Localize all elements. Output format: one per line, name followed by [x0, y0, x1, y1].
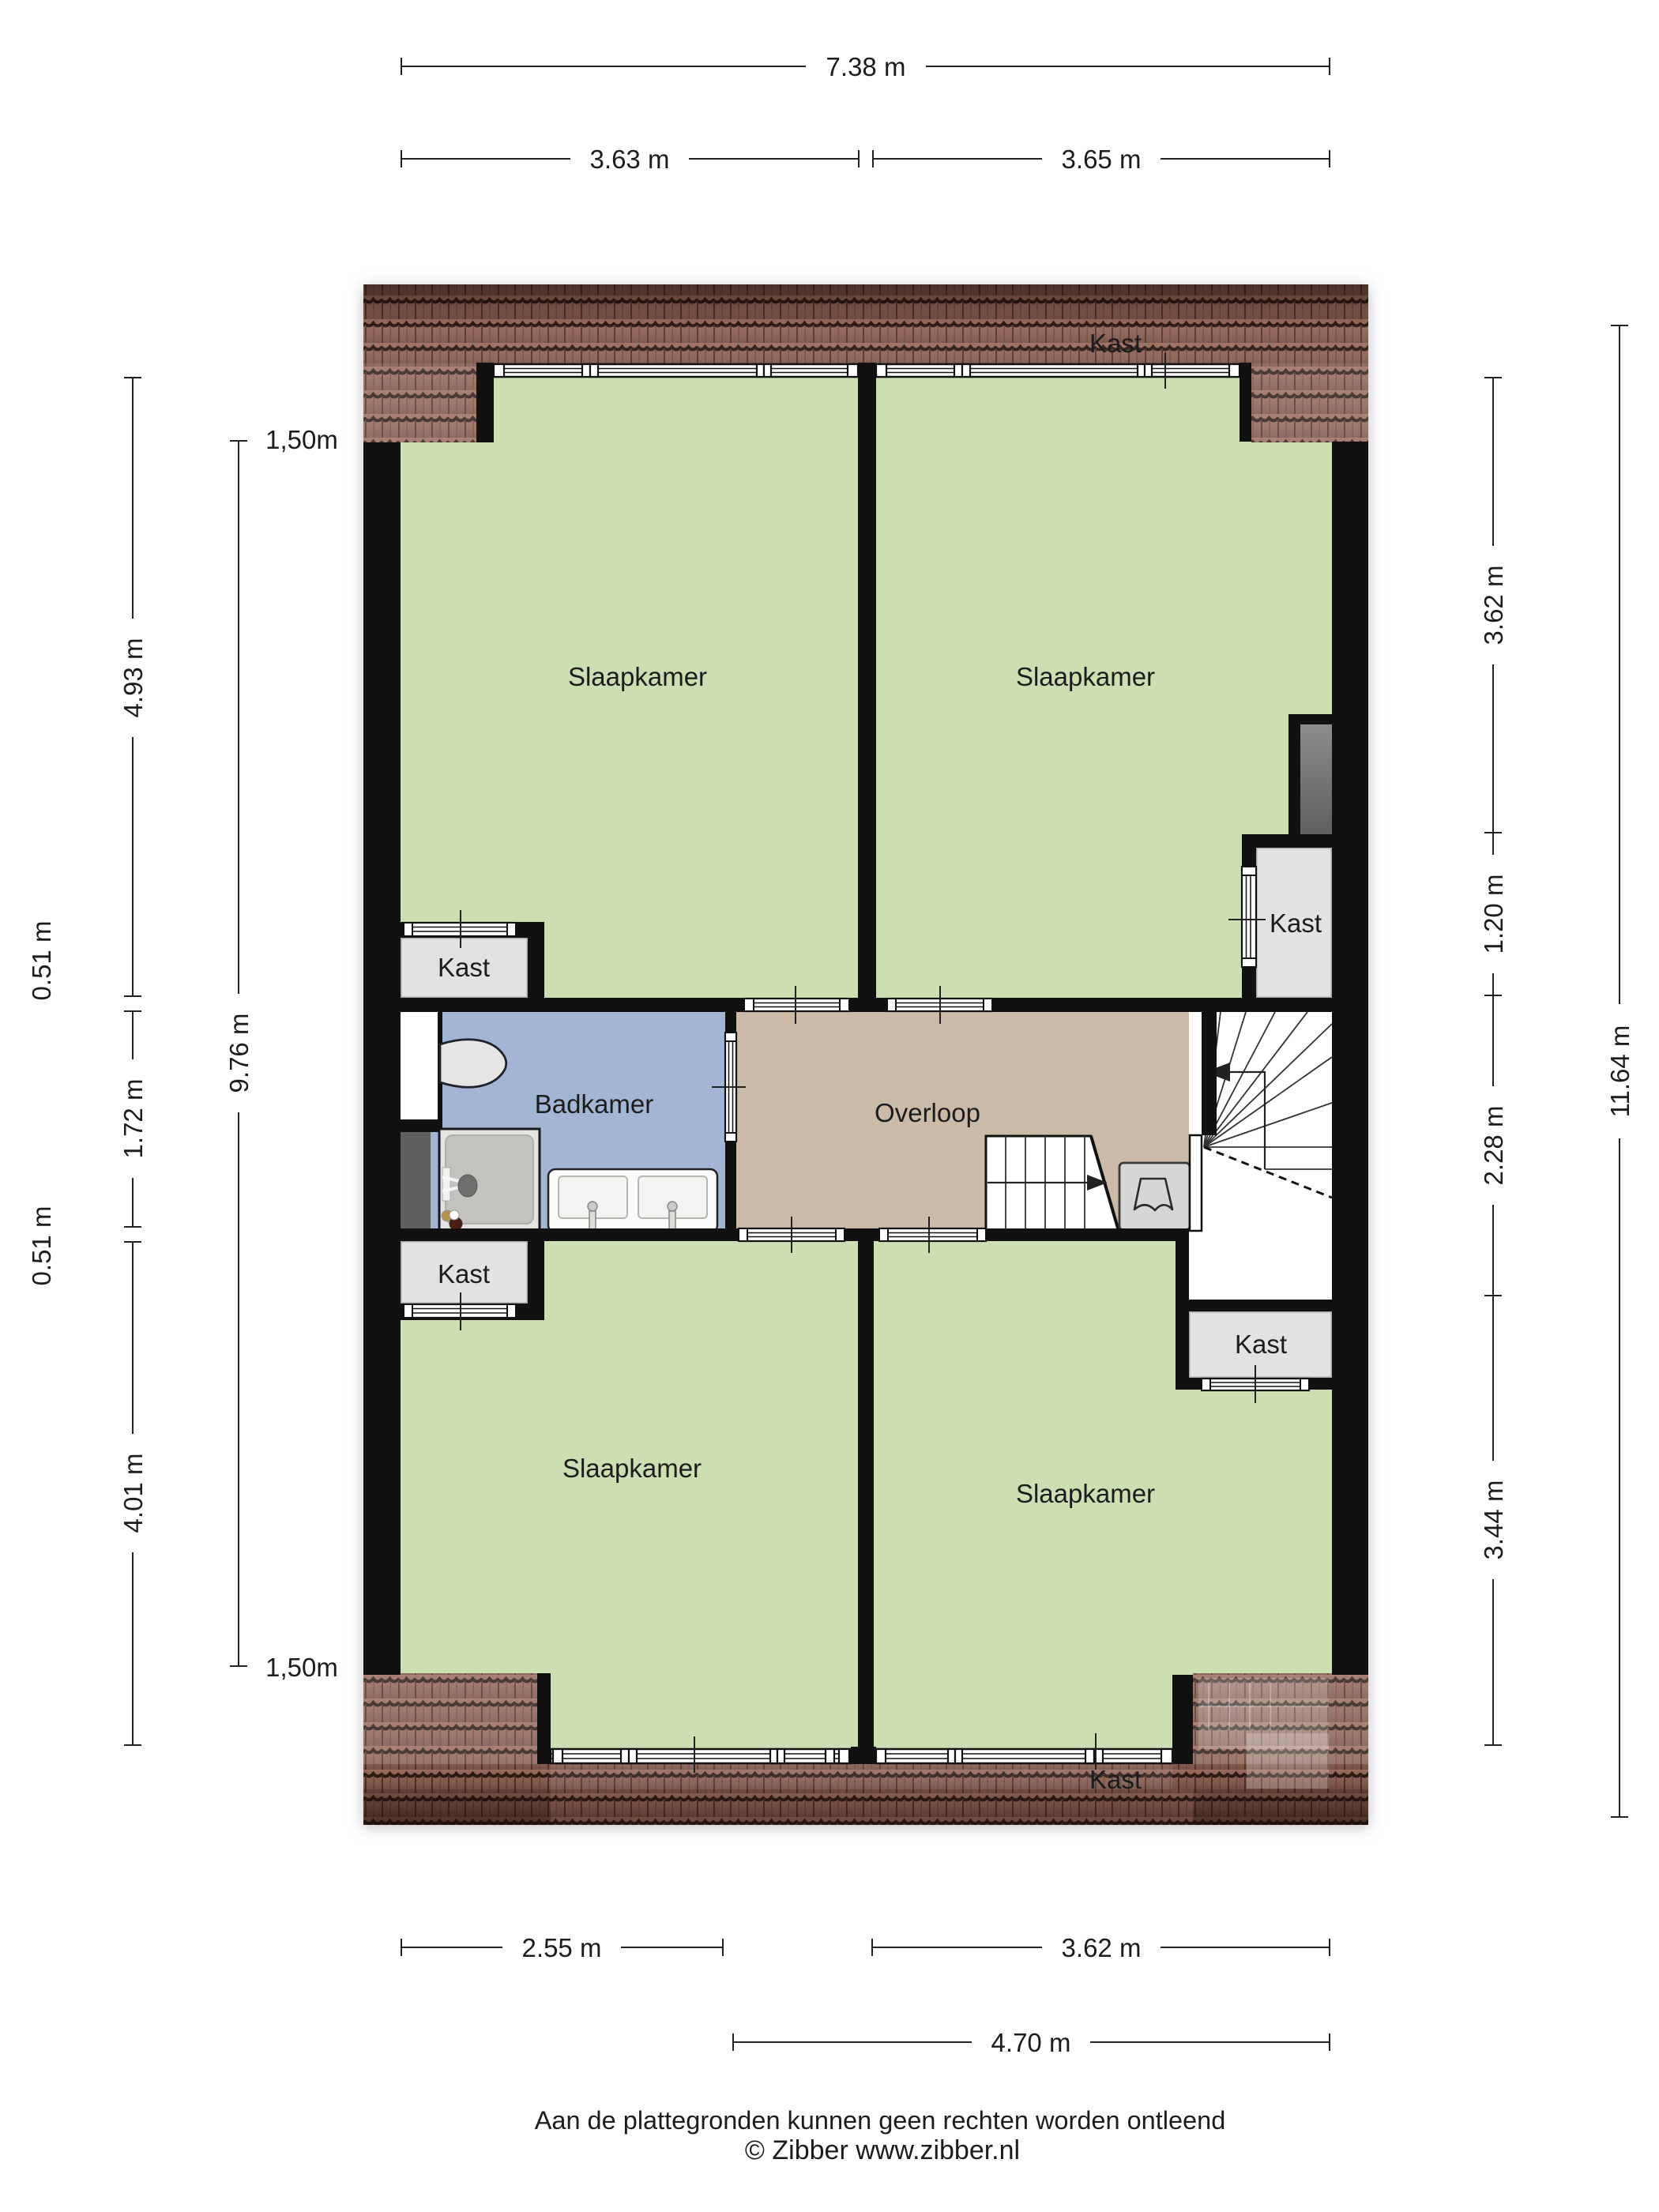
svg-text:Aan de plattegronden kunnen ge: Aan de plattegronden kunnen geen rechten… — [535, 2106, 1226, 2135]
svg-text:Slaapkamer: Slaapkamer — [568, 662, 707, 691]
svg-text:1,50m: 1,50m — [265, 425, 338, 454]
svg-text:Slaapkamer: Slaapkamer — [1016, 1479, 1155, 1508]
svg-text:Kast: Kast — [1089, 329, 1142, 358]
svg-text:Slaapkamer: Slaapkamer — [562, 1454, 702, 1483]
svg-text:4.70 m: 4.70 m — [991, 2028, 1071, 2057]
svg-text:Kast: Kast — [438, 953, 490, 982]
svg-text:4.93 m: 4.93 m — [118, 638, 148, 718]
svg-text:Kast: Kast — [1089, 1765, 1142, 1794]
svg-text:Badkamer: Badkamer — [535, 1089, 653, 1119]
svg-text:3.62 m: 3.62 m — [1062, 1933, 1142, 1962]
svg-text:Kast: Kast — [1270, 908, 1322, 938]
svg-text:0.51 m: 0.51 m — [27, 921, 56, 1001]
svg-text:Slaapkamer: Slaapkamer — [1016, 662, 1155, 691]
svg-text:3.63 m: 3.63 m — [590, 145, 670, 174]
svg-text:© Zibber www.zibber.nl: © Zibber www.zibber.nl — [745, 2135, 1020, 2165]
svg-text:3.44 m: 3.44 m — [1479, 1480, 1508, 1560]
svg-text:1,50m: 1,50m — [265, 1653, 338, 1682]
svg-text:0.51 m: 0.51 m — [27, 1206, 56, 1286]
svg-text:1.72 m: 1.72 m — [118, 1079, 148, 1159]
svg-text:3.65 m: 3.65 m — [1062, 145, 1142, 174]
svg-text:2.55 m: 2.55 m — [522, 1933, 602, 1962]
svg-text:1.20 m: 1.20 m — [1479, 875, 1508, 954]
svg-text:7.38 m: 7.38 m — [826, 52, 906, 81]
svg-text:4.01 m: 4.01 m — [118, 1454, 148, 1533]
svg-text:Kast: Kast — [438, 1259, 490, 1288]
svg-text:3.62 m: 3.62 m — [1479, 566, 1508, 645]
svg-text:11.64 m: 11.64 m — [1605, 1025, 1635, 1118]
svg-text:Overloop: Overloop — [875, 1098, 980, 1127]
svg-text:9.76 m: 9.76 m — [224, 1014, 254, 1093]
svg-text:2.28 m: 2.28 m — [1479, 1106, 1508, 1186]
svg-text:Kast: Kast — [1235, 1330, 1287, 1359]
